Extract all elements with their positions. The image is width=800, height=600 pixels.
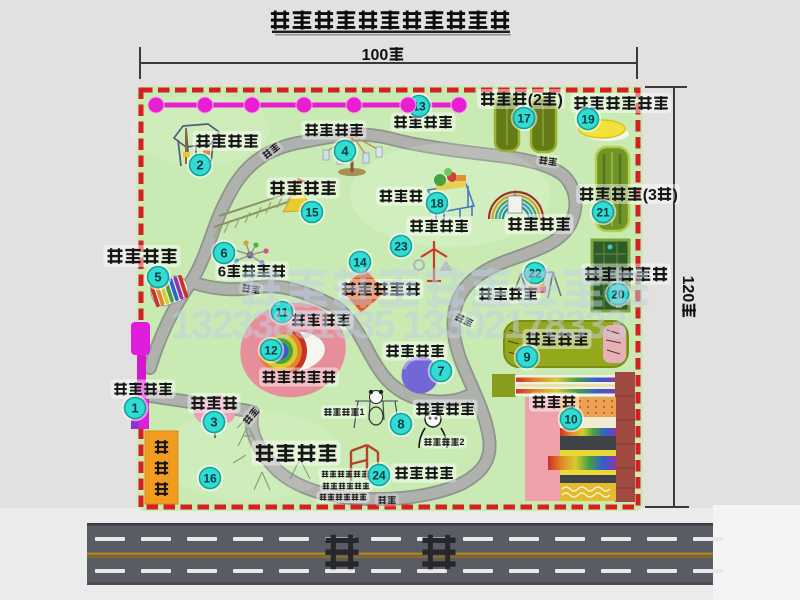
svg-text:16: 16	[203, 471, 217, 485]
svg-text:24: 24	[372, 468, 386, 482]
svg-text:6: 6	[220, 246, 227, 261]
svg-text:2: 2	[460, 437, 465, 447]
svg-text:3: 3	[210, 415, 217, 430]
svg-text:100: 100	[362, 47, 389, 64]
svg-text:15: 15	[305, 205, 319, 219]
svg-text:13233861635 13302178333: 13233861635 13302178333	[171, 303, 626, 347]
svg-text:14: 14	[353, 255, 367, 269]
svg-text:17: 17	[517, 111, 531, 125]
svg-text:120: 120	[679, 276, 696, 303]
svg-text:9: 9	[523, 350, 530, 365]
svg-text:21: 21	[596, 205, 610, 219]
svg-text:(3: (3	[643, 187, 657, 204]
svg-text:18: 18	[430, 196, 444, 210]
svg-text:19: 19	[581, 112, 595, 126]
svg-text:1: 1	[131, 401, 138, 416]
svg-text:4: 4	[341, 144, 349, 159]
svg-text:): )	[558, 92, 563, 109]
svg-text:23: 23	[394, 239, 408, 253]
svg-text:10: 10	[564, 412, 578, 426]
svg-text:8: 8	[397, 417, 404, 432]
svg-text:2: 2	[196, 158, 203, 173]
svg-text:1: 1	[360, 407, 365, 417]
svg-text:7: 7	[437, 364, 444, 379]
svg-text:): )	[673, 187, 678, 204]
svg-text:5: 5	[154, 270, 161, 285]
